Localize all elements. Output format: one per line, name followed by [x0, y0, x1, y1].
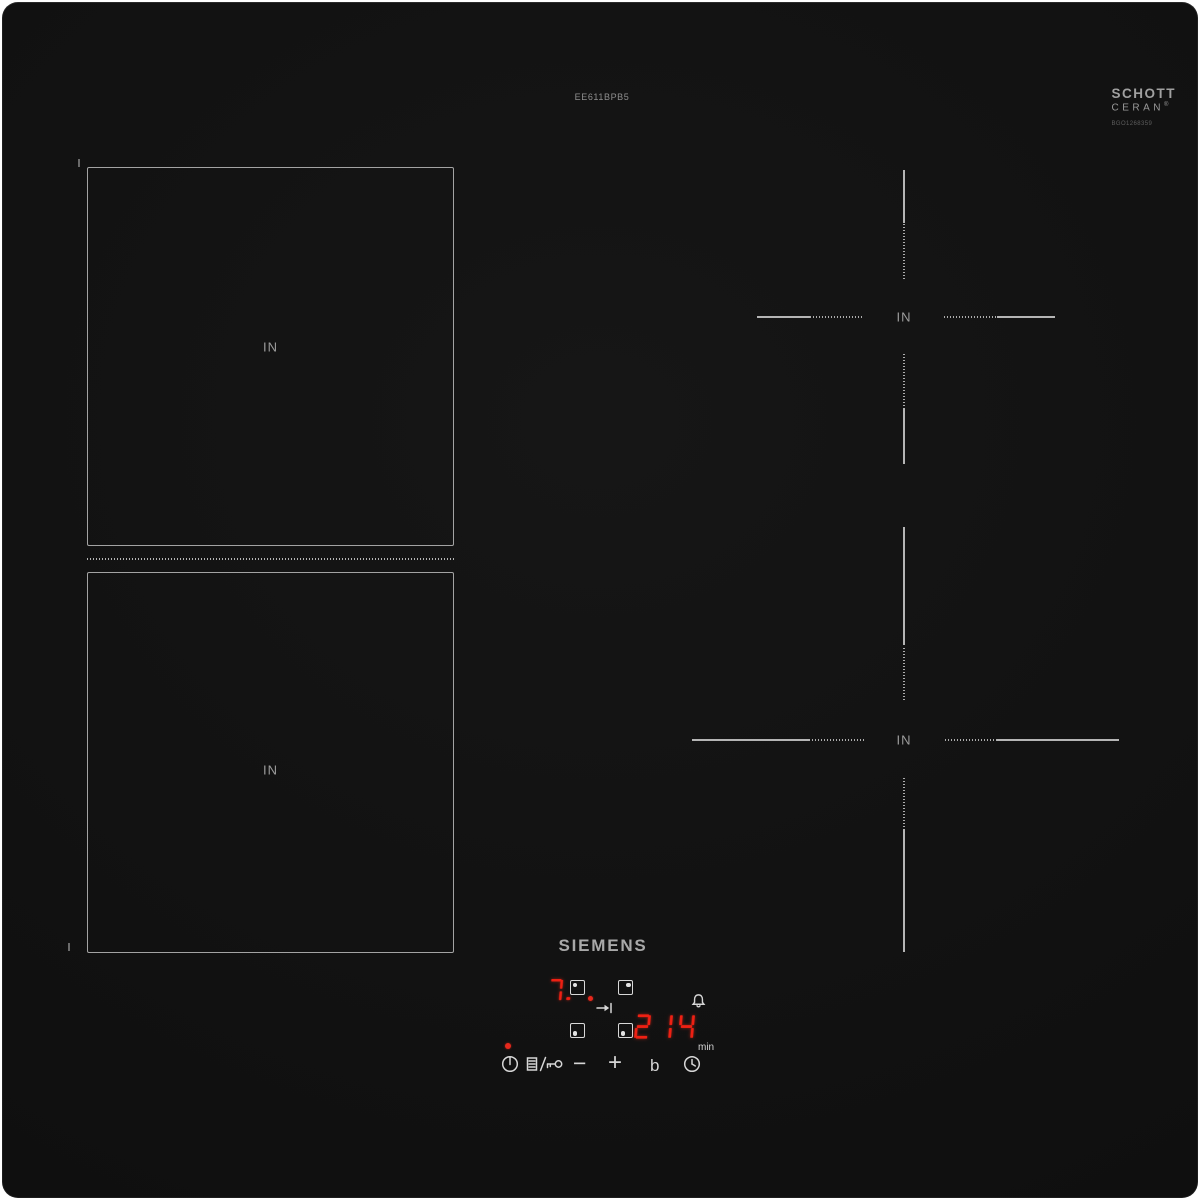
zone-cross-arm [812, 739, 864, 741]
flex-zone-divider-dotted [87, 558, 454, 560]
boost-button[interactable]: b [650, 1057, 659, 1074]
zone-cross-arm [810, 316, 864, 318]
zone-cross-arm [903, 778, 905, 829]
power-icon[interactable] [501, 1055, 519, 1073]
zone-cross-arm [757, 316, 810, 318]
ceran-wordmark: CERAN® [1112, 102, 1177, 113]
induction-zone-label: IN [263, 763, 278, 778]
wipe-protection-key-icon[interactable] [526, 1055, 564, 1073]
minus-button[interactable]: − [573, 1052, 586, 1075]
timer-clock-icon[interactable] [683, 1055, 701, 1073]
zone-cross-arm [903, 829, 905, 952]
zone-select-front-right-button[interactable] [618, 1023, 633, 1038]
model-number: EE611BPB5 [575, 92, 630, 102]
zone-cross-arm [692, 739, 810, 741]
zone-cross-arm [944, 316, 997, 318]
glass-print-code: BGO1268359 [1112, 121, 1177, 127]
zone-cross-arm [903, 354, 905, 408]
zone-select-front-left-button[interactable] [570, 1023, 585, 1038]
power-on-indicator-dot [505, 1043, 511, 1049]
timer-display [634, 1014, 702, 1039]
zone-cross-arm [997, 316, 1055, 318]
zone-cross-arm [997, 739, 1119, 741]
bridge-arrow-icon [596, 1002, 613, 1014]
zone-cross-arm [903, 170, 905, 223]
zone-cross-arm [903, 408, 905, 464]
cooking-zone-left-bottom: IN [87, 572, 454, 953]
registered-trademark: ® [1164, 102, 1168, 108]
print-registration-mark [68, 943, 70, 951]
cooking-zone-left-top: IN [87, 167, 454, 546]
zone-select-back-right-button[interactable] [618, 980, 633, 995]
alarm-bell-icon [691, 993, 706, 1008]
print-registration-mark [78, 159, 80, 167]
zone-cross-arm [903, 648, 905, 700]
induction-zone-label: IN [897, 733, 912, 748]
plus-button[interactable]: + [608, 1051, 622, 1075]
zone-select-square-icon [626, 983, 631, 988]
power-level-display [547, 979, 571, 1001]
zone-active-indicator-dot [588, 996, 593, 1001]
zone-select-square-icon [621, 1031, 626, 1036]
hob-glass-surface: EE611BPB5 SCHOTT CERAN® BGO1268359 IN IN [2, 2, 1198, 1198]
siemens-logo: SIEMENS [558, 936, 647, 956]
zone-cross-arm [903, 224, 905, 280]
zone-cross-arm [945, 739, 997, 741]
zone-select-back-left-button[interactable] [570, 980, 585, 995]
induction-zone-label: IN [897, 310, 912, 325]
product-photo-canvas: EE611BPB5 SCHOTT CERAN® BGO1268359 IN IN [0, 0, 1200, 1200]
zone-select-square-icon [573, 1031, 578, 1036]
schott-ceran-logo: SCHOTT CERAN® BGO1268359 [1112, 86, 1177, 127]
induction-zone-label: IN [263, 340, 278, 355]
zone-cross-arm [903, 527, 905, 645]
zone-select-square-icon [573, 983, 578, 988]
schott-wordmark: SCHOTT [1112, 86, 1177, 101]
timer-unit-label: min [698, 1042, 714, 1053]
